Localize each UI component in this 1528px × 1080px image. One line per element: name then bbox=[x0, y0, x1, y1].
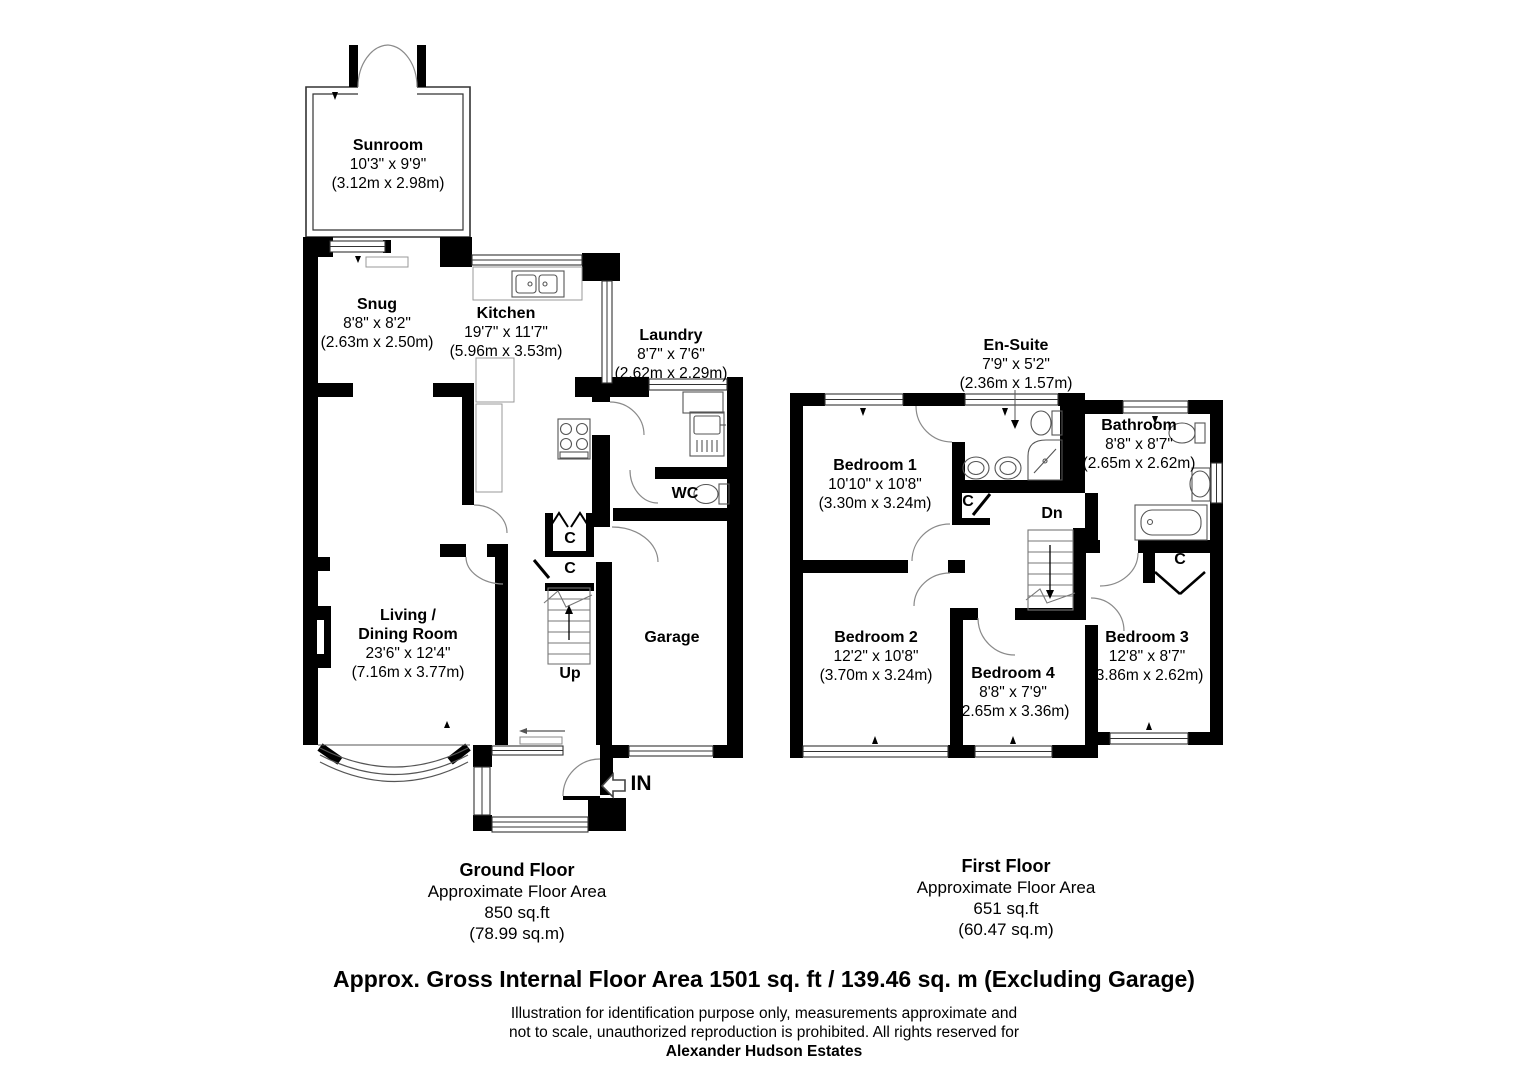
room-label-living-dining: Living / Dining Room 23'6" x 12'4" (7.16… bbox=[352, 606, 465, 682]
floor-title: Ground Floor bbox=[428, 860, 607, 881]
room-dims-metric: (3.70m x 3.24m) bbox=[820, 666, 933, 685]
company-name: Alexander Hudson Estates bbox=[0, 1042, 1528, 1061]
room-name: Bedroom 3 bbox=[1091, 628, 1204, 647]
room-dims-metric: (5.96m x 3.53m) bbox=[450, 342, 563, 361]
room-name: Kitchen bbox=[450, 304, 563, 323]
room-name: Dining Room bbox=[352, 625, 465, 644]
room-dims-imperial: 23'6" x 12'4" bbox=[352, 644, 465, 663]
disclaimer-text: Illustration for identification purpose … bbox=[0, 1004, 1528, 1061]
closet-label: C bbox=[962, 494, 974, 510]
room-dims-imperial: 8'8" x 8'7" bbox=[1083, 435, 1196, 454]
floor-subtitle: Approximate Floor Area bbox=[917, 877, 1096, 898]
room-name: Bedroom 4 bbox=[957, 664, 1070, 683]
room-dims-imperial: 8'8" x 7'9" bbox=[957, 683, 1070, 702]
floor-title: First Floor bbox=[917, 856, 1096, 877]
room-label-bathroom: Bathroom 8'8" x 8'7" (2.65m x 2.62m) bbox=[1083, 416, 1196, 473]
room-dims-metric: (2.62m x 2.29m) bbox=[615, 364, 728, 383]
room-label-laundry: Laundry 8'7" x 7'6" (2.62m x 2.29m) bbox=[615, 326, 728, 383]
room-dims-metric: (2.36m x 1.57m) bbox=[960, 374, 1073, 393]
room-dims-metric: (2.65m x 2.62m) bbox=[1083, 454, 1196, 473]
closet-label: C bbox=[1174, 552, 1186, 568]
room-label-bedroom1: Bedroom 1 10'10" x 10'8" (3.30m x 3.24m) bbox=[819, 456, 932, 513]
room-label-garage: Garage bbox=[644, 628, 699, 647]
disclaimer-line2: not to scale, unauthorized reproduction … bbox=[0, 1023, 1528, 1042]
floorplan-drawing bbox=[0, 0, 1528, 1080]
disclaimer-line1: Illustration for identification purpose … bbox=[0, 1004, 1528, 1023]
room-label-ensuite: En-Suite 7'9" x 5'2" (2.36m x 1.57m) bbox=[960, 336, 1073, 393]
floor-area-m: (60.47 sq.m) bbox=[917, 919, 1096, 940]
room-dims-imperial: 7'9" x 5'2" bbox=[960, 355, 1073, 374]
room-dims-imperial: 12'2" x 10'8" bbox=[820, 647, 933, 666]
total-area-text: Approx. Gross Internal Floor Area 1501 s… bbox=[0, 966, 1528, 993]
room-name: Sunroom bbox=[332, 136, 445, 155]
floor-area-ft: 651 sq.ft bbox=[917, 898, 1096, 919]
first-floor-summary: First Floor Approximate Floor Area 651 s… bbox=[917, 856, 1096, 940]
room-name: Bedroom 2 bbox=[820, 628, 933, 647]
room-label-bedroom3: Bedroom 3 12'8" x 8'7" (3.86m x 2.62m) bbox=[1091, 628, 1204, 685]
room-dims-metric: (7.16m x 3.77m) bbox=[352, 663, 465, 682]
room-label-kitchen: Kitchen 19'7" x 11'7" (5.96m x 3.53m) bbox=[450, 304, 563, 361]
entrance-label: IN bbox=[631, 772, 652, 796]
room-label-bedroom4: Bedroom 4 8'8" x 7'9" (2.65m x 3.36m) bbox=[957, 664, 1070, 721]
room-dims-imperial: 12'8" x 8'7" bbox=[1091, 647, 1204, 666]
room-dims-imperial: 10'3" x 9'9" bbox=[332, 155, 445, 174]
room-name: Living / bbox=[352, 606, 465, 625]
room-label-bedroom2: Bedroom 2 12'2" x 10'8" (3.70m x 3.24m) bbox=[820, 628, 933, 685]
room-dims-metric: (3.30m x 3.24m) bbox=[819, 494, 932, 513]
ground-floor-summary: Ground Floor Approximate Floor Area 850 … bbox=[428, 860, 607, 944]
room-name: Bathroom bbox=[1083, 416, 1196, 435]
room-dims-imperial: 8'8" x 8'2" bbox=[321, 314, 434, 333]
room-name: Laundry bbox=[615, 326, 728, 345]
room-name: Bedroom 1 bbox=[819, 456, 932, 475]
room-name: En-Suite bbox=[960, 336, 1073, 355]
stairs-up-label: Up bbox=[559, 666, 580, 682]
stairs-down-label: Dn bbox=[1041, 506, 1062, 522]
floor-subtitle: Approximate Floor Area bbox=[428, 881, 607, 902]
room-dims-imperial: 8'7" x 7'6" bbox=[615, 345, 728, 364]
closet-label: C bbox=[564, 561, 576, 577]
room-dims-metric: (3.12m x 2.98m) bbox=[332, 174, 445, 193]
room-name: Snug bbox=[321, 295, 434, 314]
room-dims-metric: (3.86m x 2.62m) bbox=[1091, 666, 1204, 685]
closet-label: C bbox=[564, 531, 576, 547]
room-dims-imperial: 10'10" x 10'8" bbox=[819, 475, 932, 494]
room-label-wc: WC bbox=[672, 486, 699, 502]
room-label-sunroom: Sunroom 10'3" x 9'9" (3.12m x 2.98m) bbox=[332, 136, 445, 193]
room-dims-imperial: 19'7" x 11'7" bbox=[450, 323, 563, 342]
floorplan-sheet: Sunroom 10'3" x 9'9" (3.12m x 2.98m) Snu… bbox=[0, 0, 1528, 1080]
room-dims-metric: (2.63m x 2.50m) bbox=[321, 333, 434, 352]
floor-area-m: (78.99 sq.m) bbox=[428, 923, 607, 944]
floor-area-ft: 850 sq.ft bbox=[428, 902, 607, 923]
room-dims-metric: (2.65m x 3.36m) bbox=[957, 702, 1070, 721]
room-label-snug: Snug 8'8" x 8'2" (2.63m x 2.50m) bbox=[321, 295, 434, 352]
